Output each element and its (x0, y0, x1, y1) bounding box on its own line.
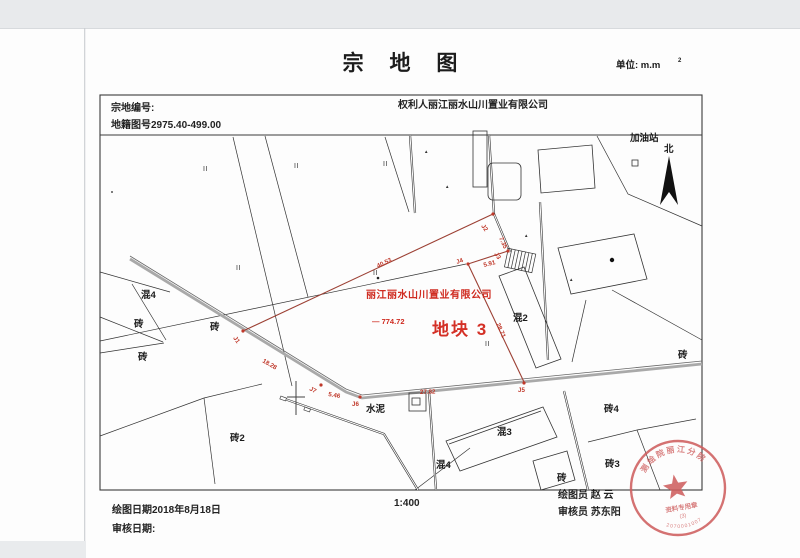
ii-mark: II (383, 161, 388, 168)
land-label: 砖 (678, 349, 688, 361)
ctl-mark: ▲ (424, 149, 428, 154)
land-label: 加油站 (629, 132, 659, 144)
land-label: 砖 (210, 321, 220, 333)
map-scale: 1:400 (394, 498, 420, 509)
boundary-point-J2 (491, 212, 494, 215)
land-label: 砖3 (605, 458, 620, 470)
seal-arc-text: 测绘院丽江分院 (635, 439, 710, 476)
land-label: 砖4 (604, 403, 620, 415)
red-label: J7 (308, 386, 318, 396)
land-label: 北 (664, 143, 674, 155)
svg-text:测绘院丽江分院: 测绘院丽江分院 (635, 439, 710, 476)
land-label: 砖 (557, 472, 567, 484)
red-label: 7.35 (497, 236, 509, 250)
boundary-point-J1 (241, 329, 244, 332)
ii-mark: II (294, 163, 299, 170)
red-label: J6 (352, 401, 359, 408)
plot-annotation: 丽江丽水山川置业有限公司 — 774.72 地块 3 (366, 288, 492, 339)
boundary-point-J3 (506, 249, 509, 252)
boundary-point-J7 (319, 383, 322, 386)
boundary-point-dots (241, 212, 525, 398)
seal-stamp-label: 资料专用章 (665, 500, 699, 515)
ctl-mark: ▲ (524, 233, 528, 238)
red-label: 5.91 (483, 259, 497, 269)
scan-artifacts (0, 0, 800, 558)
red-label: 28.71 (494, 322, 507, 340)
boundary-point-J4 (466, 262, 469, 265)
red-label: J2 (479, 223, 489, 233)
cadastral-number: 地籍图号2975.40-499.00 (111, 118, 222, 131)
unit-superscript: 2 (678, 58, 682, 64)
draw-date: 绘图日期2018年8月18日 (112, 503, 221, 516)
land-label: 砖 (138, 351, 148, 363)
red-label: 40.53 (376, 256, 393, 269)
page-title: 宗 地 图 (343, 51, 468, 75)
land-use-labels: 混4砖砖砖砖2水泥混2混3混4砖砖3砖4砖加油站北 (134, 132, 688, 484)
land-label: 混4 (436, 459, 452, 471)
unit-label: 单位: m.m (616, 59, 660, 71)
footer-fields: 绘图日期2018年8月18日 审核日期: 1:400 绘图员 赵 云 审核员 苏… (112, 488, 621, 535)
land-label: 砖 (134, 318, 144, 330)
boundary-point-J6 (358, 395, 361, 398)
boundary-point-J5 (522, 381, 525, 384)
control-point-marks: ▲▲▲▲ (424, 149, 573, 282)
land-label: 砖2 (230, 432, 245, 444)
ctl-mark: ▲ (445, 184, 449, 189)
north-arrow-icon (660, 156, 678, 205)
red-label: 5.46 (328, 391, 342, 400)
drafter-name: 绘图员 赵 云 (558, 488, 614, 501)
red-label: 27.82 (420, 388, 436, 396)
seal-star-icon (661, 472, 690, 499)
red-label: J5 (518, 387, 525, 394)
plot-name-text: 地块 3 (432, 319, 488, 339)
scanned-parcel-map-document: 宗 地 图 单位: m.m 2 宗地编号: 地籍图号2975.40-499.00… (0, 0, 800, 558)
parcel-number-label: 宗地编号: (111, 101, 154, 114)
ii-mark: II (236, 265, 241, 272)
review-date: 审核日期: (112, 522, 155, 535)
title-block: 宗 地 图 单位: m.m 2 (343, 51, 682, 75)
reviewer-name: 审核员 苏东阳 (558, 505, 621, 518)
ctl-mark: ▲ (569, 277, 573, 282)
land-label: 混3 (497, 426, 512, 438)
land-label: 混2 (513, 312, 528, 324)
header-fields: 宗地编号: 地籍图号2975.40-499.00 权利人丽江丽水山川置业有限公司 (111, 98, 548, 131)
red-label: 18.28 (261, 358, 278, 372)
seal-stamp-number: (3) (679, 513, 687, 520)
parcel-map-svg: 宗 地 图 单位: m.m 2 宗地编号: 地籍图号2975.40-499.00… (0, 0, 800, 558)
ii-mark: II (373, 270, 378, 277)
plot-owner-text: 丽江丽水山川置业有限公司 (366, 288, 492, 301)
land-label: 水泥 (366, 403, 386, 415)
ii-mark: II (485, 341, 490, 348)
ii-mark: II (203, 166, 208, 173)
land-label: 混4 (141, 289, 157, 301)
red-label: J1 (231, 335, 241, 345)
parcel-lines (100, 136, 702, 490)
official-seal: 测绘院丽江分院 2070001007 资料专用章 (3) (624, 434, 733, 543)
plot-area-text: — 774.72 (372, 317, 405, 326)
owner-field: 权利人丽江丽水山川置业有限公司 (397, 98, 548, 111)
